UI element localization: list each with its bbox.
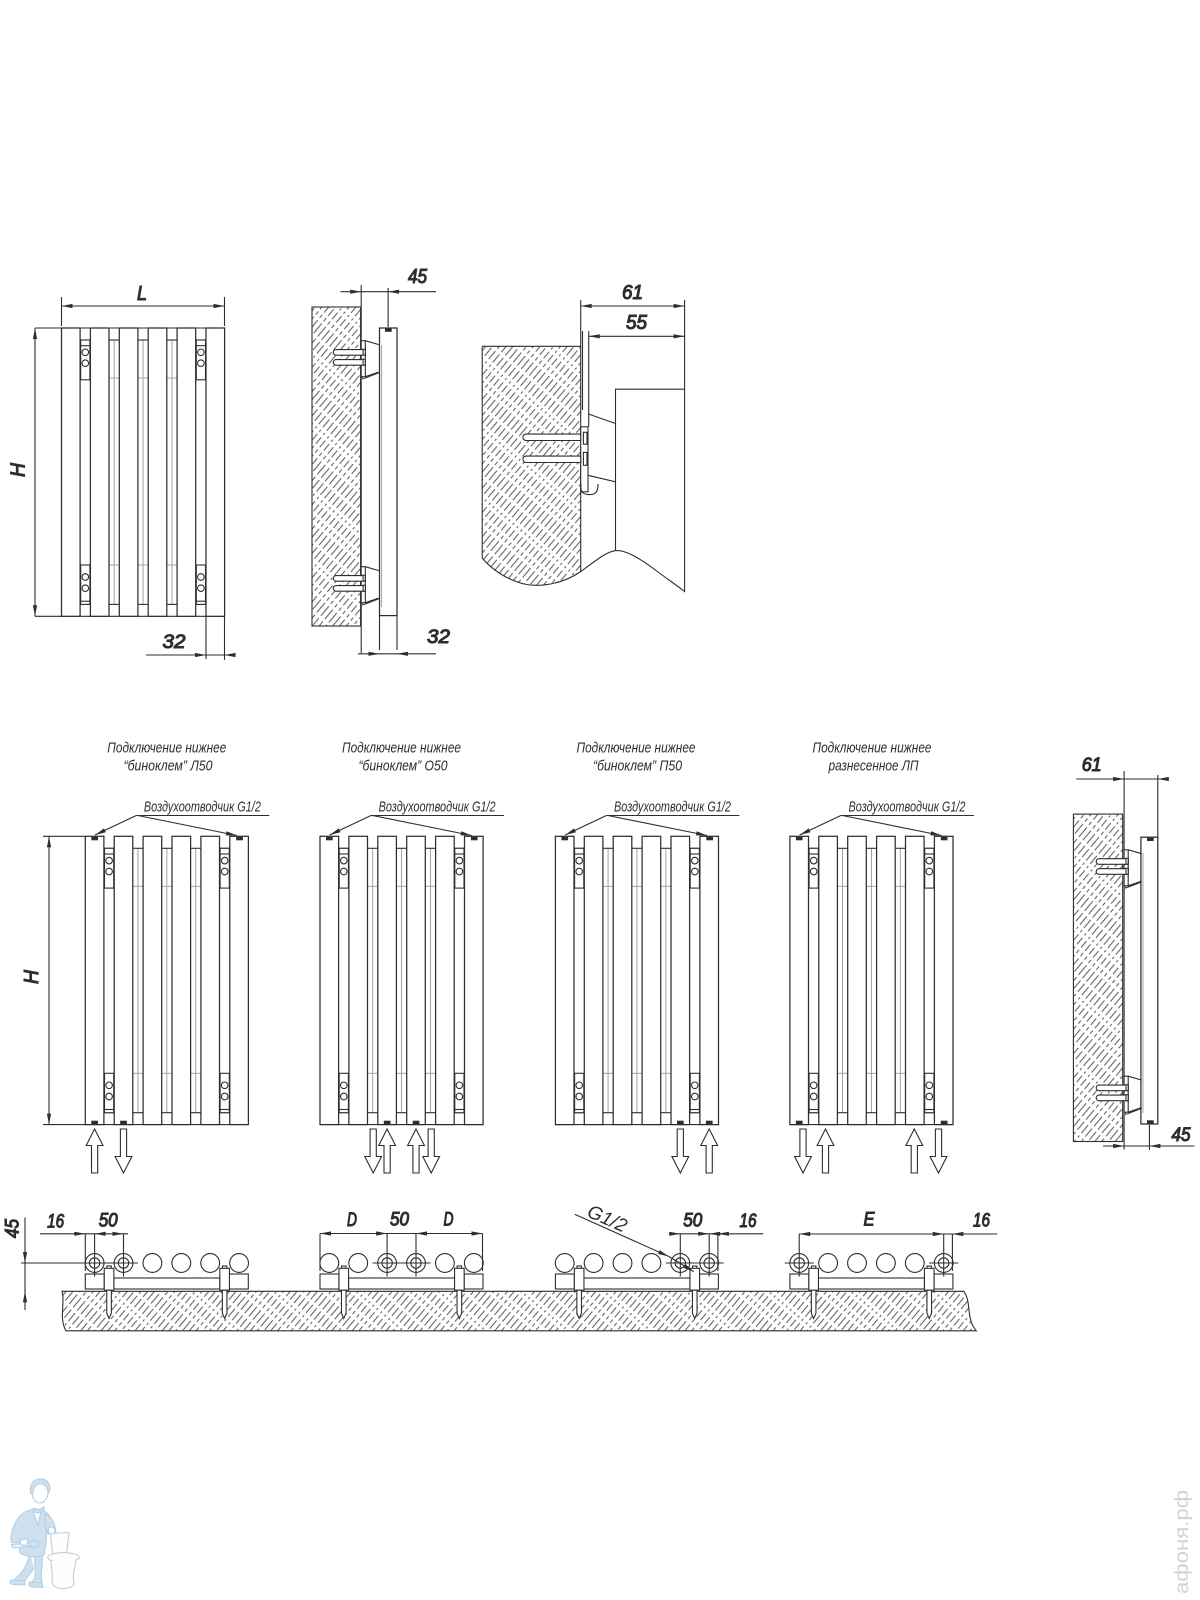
svg-text:H: H	[21, 969, 43, 984]
svg-text:55: 55	[626, 312, 648, 334]
svg-text:L: L	[137, 283, 147, 305]
svg-text:45: 45	[408, 266, 428, 288]
svg-text:H: H	[8, 462, 30, 477]
svg-text:50: 50	[99, 1211, 118, 1232]
svg-text:50: 50	[683, 1211, 702, 1232]
svg-text:61: 61	[622, 282, 643, 304]
svg-text:Воздухоотводчик G1/2: Воздухоотводчик G1/2	[849, 800, 966, 816]
svg-text:45: 45	[1172, 1125, 1191, 1146]
svg-text:Воздухоотводчик G1/2: Воздухоотводчик G1/2	[144, 800, 261, 816]
svg-text:50: 50	[390, 1210, 409, 1231]
svg-text:16: 16	[740, 1211, 757, 1232]
svg-text:E: E	[864, 1210, 875, 1231]
svg-text:32: 32	[427, 626, 450, 648]
svg-text:афоня.рф: афоня.рф	[1172, 1490, 1193, 1594]
svg-text:Подключение нижнее: Подключение нижнее	[107, 740, 226, 757]
svg-text:Подключение нижнее: Подключение нижнее	[813, 740, 932, 757]
svg-text:Подключение нижнее: Подключение нижнее	[342, 740, 461, 757]
svg-text:45: 45	[3, 1219, 24, 1238]
svg-text:D: D	[444, 1210, 454, 1231]
svg-text:Подключение нижнее: Подключение нижнее	[577, 740, 696, 757]
svg-text:32: 32	[163, 631, 186, 653]
svg-text:Воздухоотводчик G1/2: Воздухоотводчик G1/2	[614, 800, 731, 816]
svg-text:“биноклем” П50: “биноклем” П50	[593, 758, 683, 775]
svg-text:“биноклем” Л50: “биноклем” Л50	[124, 758, 214, 775]
svg-text:16: 16	[973, 1211, 990, 1232]
svg-text:D: D	[347, 1210, 357, 1231]
svg-text:16: 16	[47, 1212, 64, 1233]
svg-text:“биноклем” О50: “биноклем” О50	[359, 758, 449, 775]
svg-text:Воздухоотводчик G1/2: Воздухоотводчик G1/2	[379, 800, 496, 816]
svg-text:61: 61	[1082, 755, 1102, 776]
svg-text:G1/2: G1/2	[584, 1201, 630, 1237]
svg-text:разнесенное ЛП: разнесенное ЛП	[828, 758, 919, 775]
